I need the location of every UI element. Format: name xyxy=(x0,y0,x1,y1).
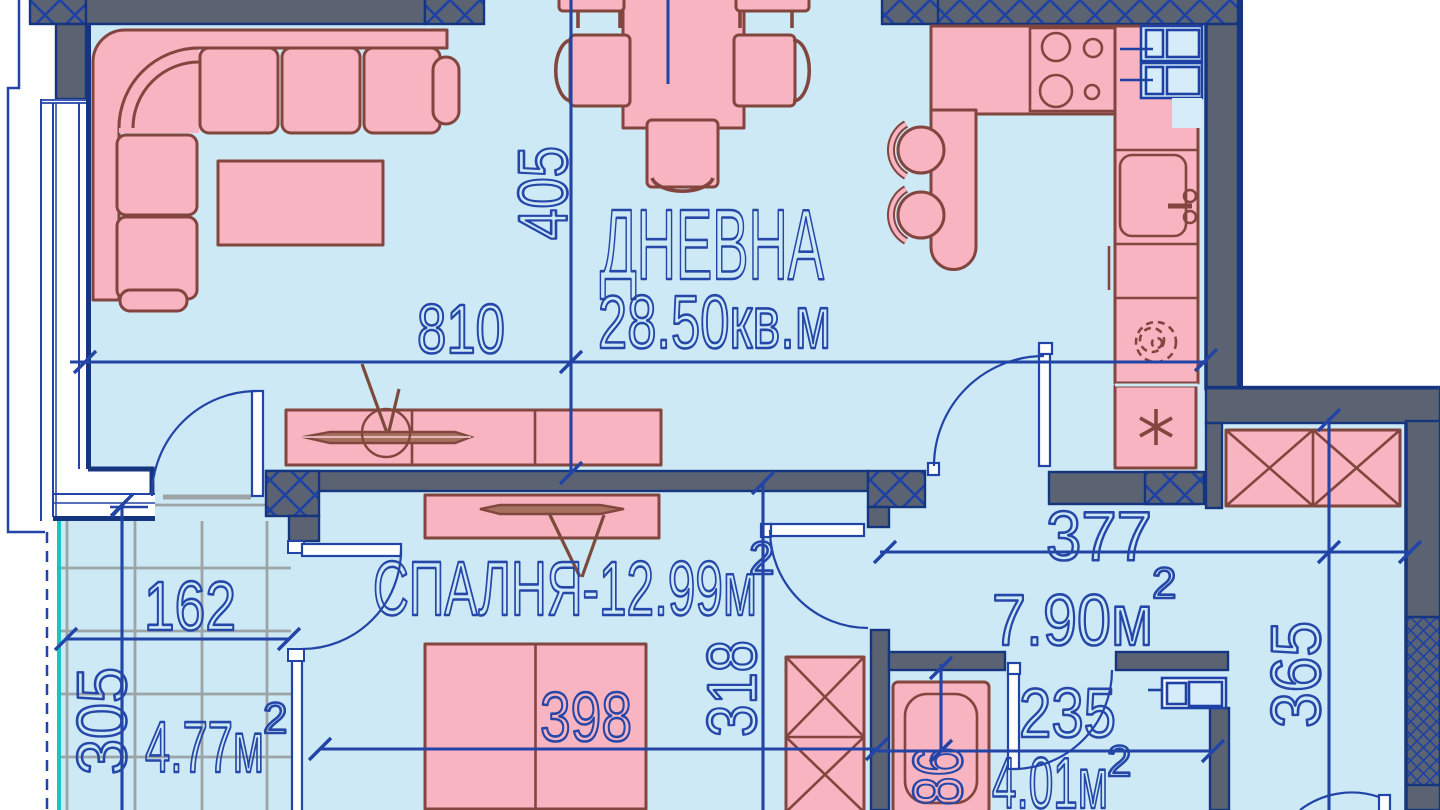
svg-text:4.77м: 4.77м xyxy=(145,708,264,788)
svg-text:162: 162 xyxy=(144,567,236,645)
svg-text:2: 2 xyxy=(749,532,775,584)
svg-text:86: 86 xyxy=(899,747,977,806)
svg-text:235: 235 xyxy=(1019,674,1116,752)
svg-text:28.50кв.м: 28.50кв.м xyxy=(598,280,831,364)
svg-text:2: 2 xyxy=(1152,559,1176,608)
svg-text:СПАЛНЯ-12.99м: СПАЛНЯ-12.99м xyxy=(373,546,757,632)
svg-text:305: 305 xyxy=(63,667,141,775)
svg-text:405: 405 xyxy=(504,146,582,240)
svg-text:318: 318 xyxy=(693,640,771,737)
svg-text:7.90м: 7.90м xyxy=(992,581,1153,661)
svg-text:4.01м: 4.01м xyxy=(992,744,1108,810)
svg-text:377: 377 xyxy=(1046,497,1152,575)
svg-text:2: 2 xyxy=(1107,737,1131,786)
svg-text:810: 810 xyxy=(417,290,505,368)
svg-text:2: 2 xyxy=(263,694,287,743)
svg-text:365: 365 xyxy=(1257,621,1335,728)
svg-text:398: 398 xyxy=(540,678,632,756)
